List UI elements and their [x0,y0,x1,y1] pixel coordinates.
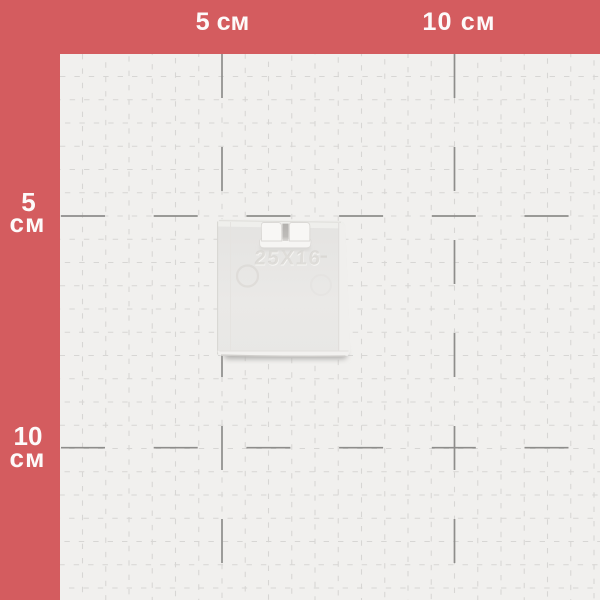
svg-text:5 см: 5 см [196,8,250,36]
svg-text:25X16: 25X16 [254,247,323,270]
svg-text:см: см [9,208,45,238]
svg-text:10 см: 10 см [422,8,495,36]
svg-text:см: см [9,443,45,473]
